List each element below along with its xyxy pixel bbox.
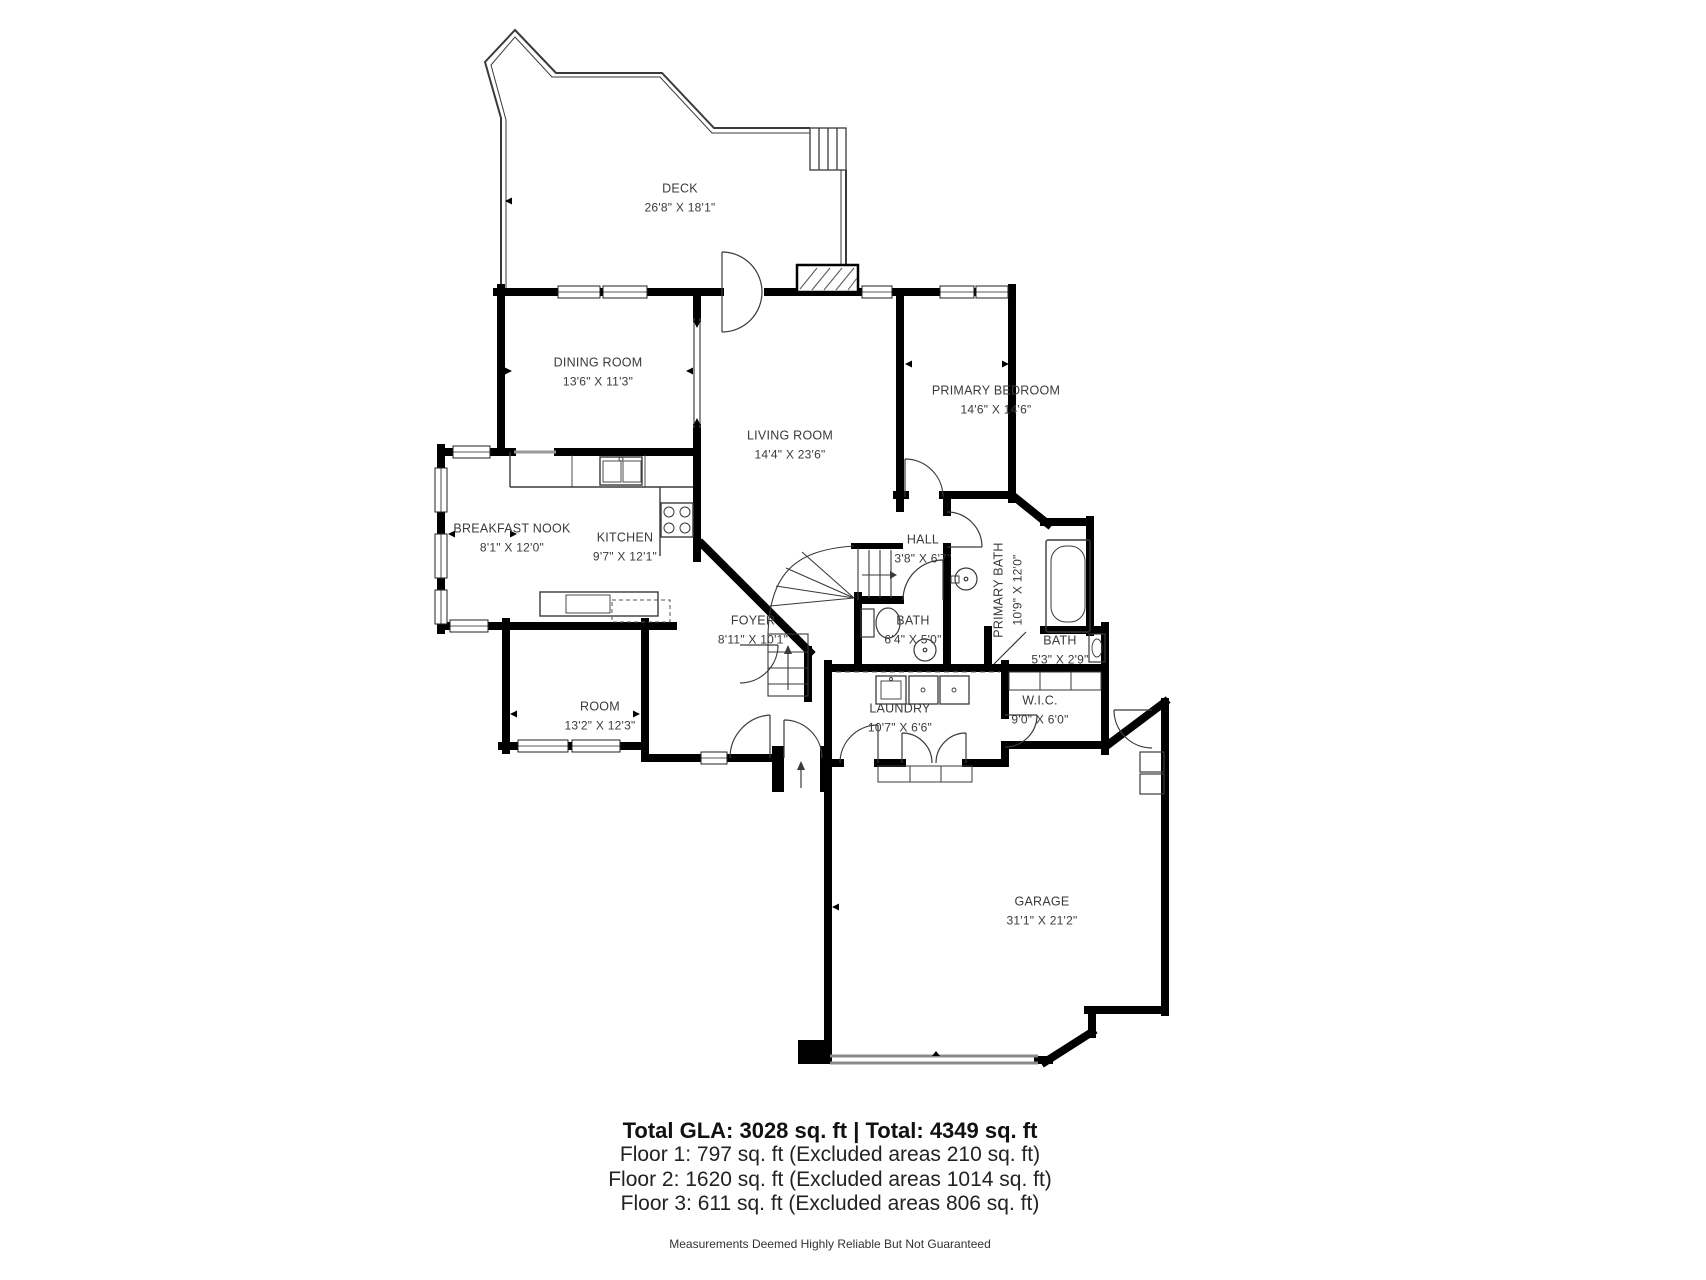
room-name: BATH (884, 612, 941, 631)
floor-plan-drawing (0, 0, 1706, 1280)
bathtub-icon (1046, 540, 1090, 632)
room-dims: 8'11" X 10'1" (718, 630, 788, 648)
room-name: LAUNDRY (868, 700, 932, 719)
room-label-room: ROOM 13'2" X 12'3" (564, 698, 635, 735)
room-dims: 13'2" X 12'3" (564, 716, 635, 734)
garage-shelves (1140, 752, 1164, 794)
room-name: DINING ROOM (554, 354, 643, 373)
room-label-breakfast-nook: BREAKFAST NOOK 8'1" X 12'0" (453, 520, 570, 557)
room-label-primary-bath: PRIMARY BATH 10'9" X 12'0" (990, 542, 1027, 637)
room-dims: 10'9" X 12'0" (1008, 542, 1026, 637)
room-dims: 31'1" X 21'2" (1006, 911, 1077, 929)
room-label-wic: W.I.C. 9'0" X 6'0" (1011, 692, 1068, 729)
garage-door (830, 1051, 1038, 1068)
room-dims: 6'4" X 5'0" (884, 630, 941, 648)
room-label-dining: DINING ROOM 13'6" X 11'3" (554, 354, 643, 391)
garage-step (878, 766, 972, 782)
cased-opening-dining-living (694, 318, 700, 428)
room-dims: 9'0" X 6'0" (1011, 710, 1068, 728)
room-label-foyer: FOYER 8'11" X 10'1" (718, 612, 788, 649)
room-name: BREAKFAST NOOK (453, 520, 570, 539)
room-label-hall: HALL 3'8" X 6'7" (894, 531, 951, 568)
room-name: KITCHEN (593, 529, 657, 548)
room-label-bath-2: BATH 5'3" X 2'9" (1031, 632, 1088, 669)
room-label-deck: DECK 26'8" X 18'1" (644, 180, 715, 217)
room-dims: 14'4" X 23'6" (747, 445, 833, 463)
stove-icon (661, 503, 693, 537)
room-name: W.I.C. (1011, 692, 1068, 711)
wic-shelf (1009, 672, 1101, 690)
room-name: BATH (1031, 632, 1088, 651)
room-dims: 5'3" X 2'9" (1031, 650, 1088, 668)
room-name: FOYER (718, 612, 788, 631)
room-label-kitchen: KITCHEN 9'7" X 12'1" (593, 529, 657, 566)
room-name: LIVING ROOM (747, 427, 833, 446)
room-dims: 26'8" X 18'1" (644, 198, 715, 216)
room-label-laundry: LAUNDRY 10'7" X 6'6" (868, 700, 932, 737)
disclaimer-text: Measurements Deemed Highly Reliable But … (608, 1237, 1052, 1251)
pedestal-sink-icon (951, 568, 977, 590)
room-dims: 8'1" X 12'0" (453, 538, 570, 556)
floor-1-line: Floor 1: 797 sq. ft (Excluded areas 210 … (608, 1143, 1052, 1168)
fireplace-icon (797, 265, 858, 292)
floor-3-line: Floor 3: 611 sq. ft (Excluded areas 806 … (608, 1192, 1052, 1217)
room-name: DECK (644, 180, 715, 199)
stairs-arrow-right (890, 571, 897, 579)
room-name: GARAGE (1006, 893, 1077, 912)
entry-jamb-left (772, 746, 784, 792)
room-label-primary-bedroom: PRIMARY BEDROOM 14'6" X 14'6" (932, 382, 1060, 419)
room-dims: 9'7" X 12'1" (593, 547, 657, 565)
room-dims: 3'8" X 6'7" (894, 549, 951, 567)
garage-corner-block (798, 1040, 830, 1064)
room-label-bath: BATH 6'4" X 5'0" (884, 612, 941, 649)
total-gla-line: Total GLA: 3028 sq. ft | Total: 4349 sq.… (608, 1118, 1052, 1143)
room-name: PRIMARY BEDROOM (932, 382, 1060, 401)
floor-2-line: Floor 2: 1620 sq. ft (Excluded areas 101… (608, 1168, 1052, 1193)
kitchen-sink-icon (600, 457, 642, 485)
deck-outline (485, 30, 846, 290)
doors (722, 252, 1152, 763)
room-label-living: LIVING ROOM 14'4" X 23'6" (747, 427, 833, 464)
room-dims: 14'6" X 14'6" (932, 400, 1060, 418)
room-name: ROOM (564, 698, 635, 717)
deck-stairs-icon (810, 128, 846, 170)
room-label-garage: GARAGE 31'1" X 21'2" (1006, 893, 1077, 930)
room-dims: 10'7" X 6'6" (868, 718, 932, 736)
room-name: HALL (894, 531, 951, 550)
room-name: PRIMARY BATH (990, 542, 1009, 637)
room-dims: 13'6" X 11'3" (554, 372, 643, 390)
summary-block: Total GLA: 3028 sq. ft | Total: 4349 sq.… (608, 1118, 1052, 1251)
entry-arrow-icon (797, 761, 805, 788)
floor-plan-page: DECK 26'8" X 18'1" DINING ROOM 13'6" X 1… (0, 0, 1706, 1280)
